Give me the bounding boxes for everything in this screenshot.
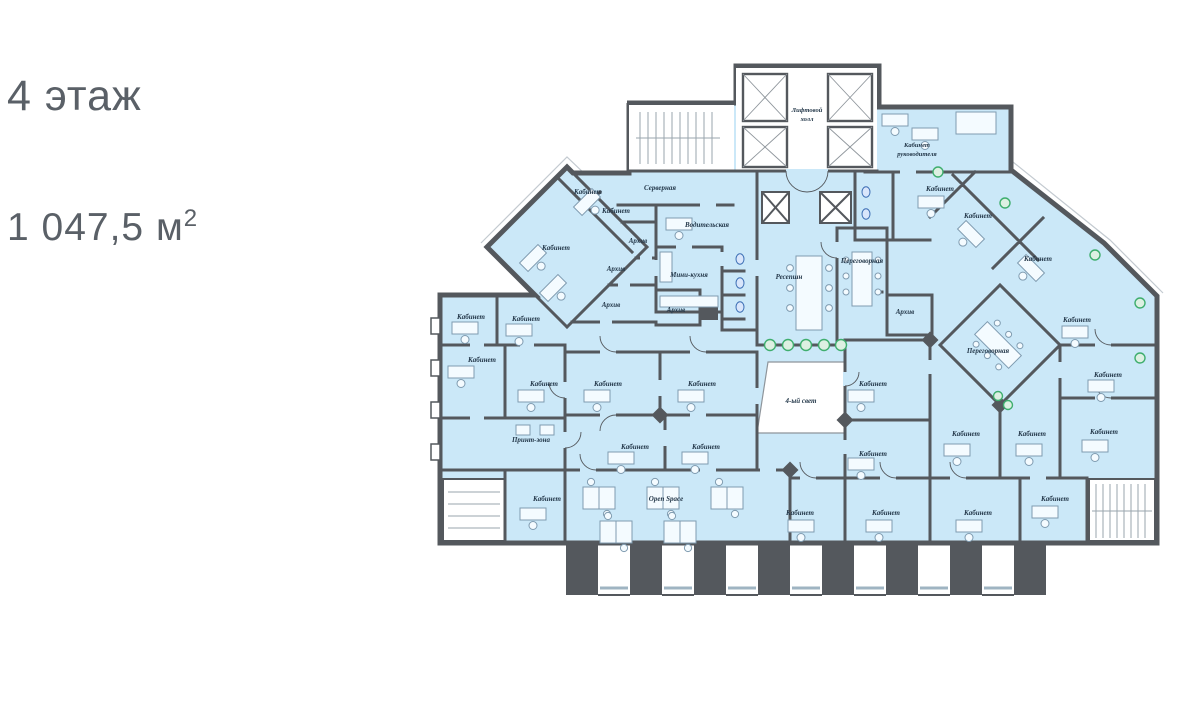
- floor-plan: Лифтовой холл Кабинет руководителя Серве…: [0, 0, 1184, 709]
- room-label-office: Кабинет: [620, 443, 650, 451]
- floor-plan-page: 4 этаж 1 047,5 м2: [0, 0, 1184, 709]
- pillar-row: [566, 545, 1046, 595]
- room-label-office: Кабинет: [951, 430, 981, 438]
- room-label-meeting-1: Переговорная: [840, 257, 884, 265]
- room-label-office: Кабинет: [925, 185, 955, 193]
- stairwell-bottom-left: [443, 479, 505, 541]
- room-label-open-space: Open Space: [649, 495, 683, 503]
- room-label-office: Кабинет: [467, 356, 497, 364]
- room-label-office: Кабинет: [593, 380, 623, 388]
- room-label-office: Кабинет: [858, 450, 888, 458]
- room-label-reception: Ресепшн: [776, 273, 803, 281]
- room-label-office: Кабинет: [691, 443, 721, 451]
- room-label-kitchen: Мини-кухня: [669, 271, 708, 279]
- room-label-archive: Архив: [606, 265, 626, 273]
- room-label-office: Кабинет: [963, 212, 993, 220]
- room-label-office: Кабинет: [601, 207, 631, 215]
- room-label-office: Кабинет: [1093, 371, 1123, 379]
- room-label-office: Кабинет: [1062, 316, 1092, 324]
- stairwell-bottom-right: [1089, 479, 1155, 541]
- room-label-office: Кабинет: [1040, 495, 1070, 503]
- room-label-director-office: Кабинет: [903, 142, 930, 149]
- room-label-archive: Архив: [895, 308, 915, 316]
- room-label-archive: Архив: [666, 306, 686, 314]
- room-label-office: Кабинет: [541, 244, 571, 252]
- room-label-office: Кабинет: [1089, 428, 1119, 436]
- room-label-elevator-hall-2: холл: [800, 116, 815, 123]
- room-label-archive: Архив: [601, 301, 621, 309]
- room-label-office: Кабинет: [785, 509, 815, 517]
- room-label-archive: Архив: [628, 237, 648, 245]
- room-label-office: Кабинет: [456, 313, 486, 321]
- room-label-atrium: 4-ый свет: [785, 397, 817, 405]
- room-label-office: Кабинет: [511, 315, 541, 323]
- room-label-office: Кабинет: [687, 380, 717, 388]
- room-label-driver: Водительская: [684, 221, 729, 229]
- room-label-office: Кабинет: [1017, 430, 1047, 438]
- room-label-print-zone: Принт-зона: [511, 436, 551, 444]
- room-label-office: Кабинет: [858, 380, 888, 388]
- room-label-office: Кабинет: [1023, 255, 1053, 263]
- room-label-office: Кабинет: [871, 509, 901, 517]
- room-label-office: Кабинет: [529, 380, 559, 388]
- room-label-director-office-2: руководителя: [896, 151, 937, 158]
- room-label-office: Кабинет: [573, 188, 603, 196]
- room-label-office: Кабинет: [963, 509, 993, 517]
- room-label-office: Кабинет: [532, 495, 562, 503]
- stairwell-top: [629, 105, 734, 171]
- room-label-elevator-hall: Лифтовой: [791, 107, 823, 114]
- room-label-meeting-2: Переговорная: [966, 347, 1010, 355]
- room-label-server: Серверная: [644, 184, 676, 192]
